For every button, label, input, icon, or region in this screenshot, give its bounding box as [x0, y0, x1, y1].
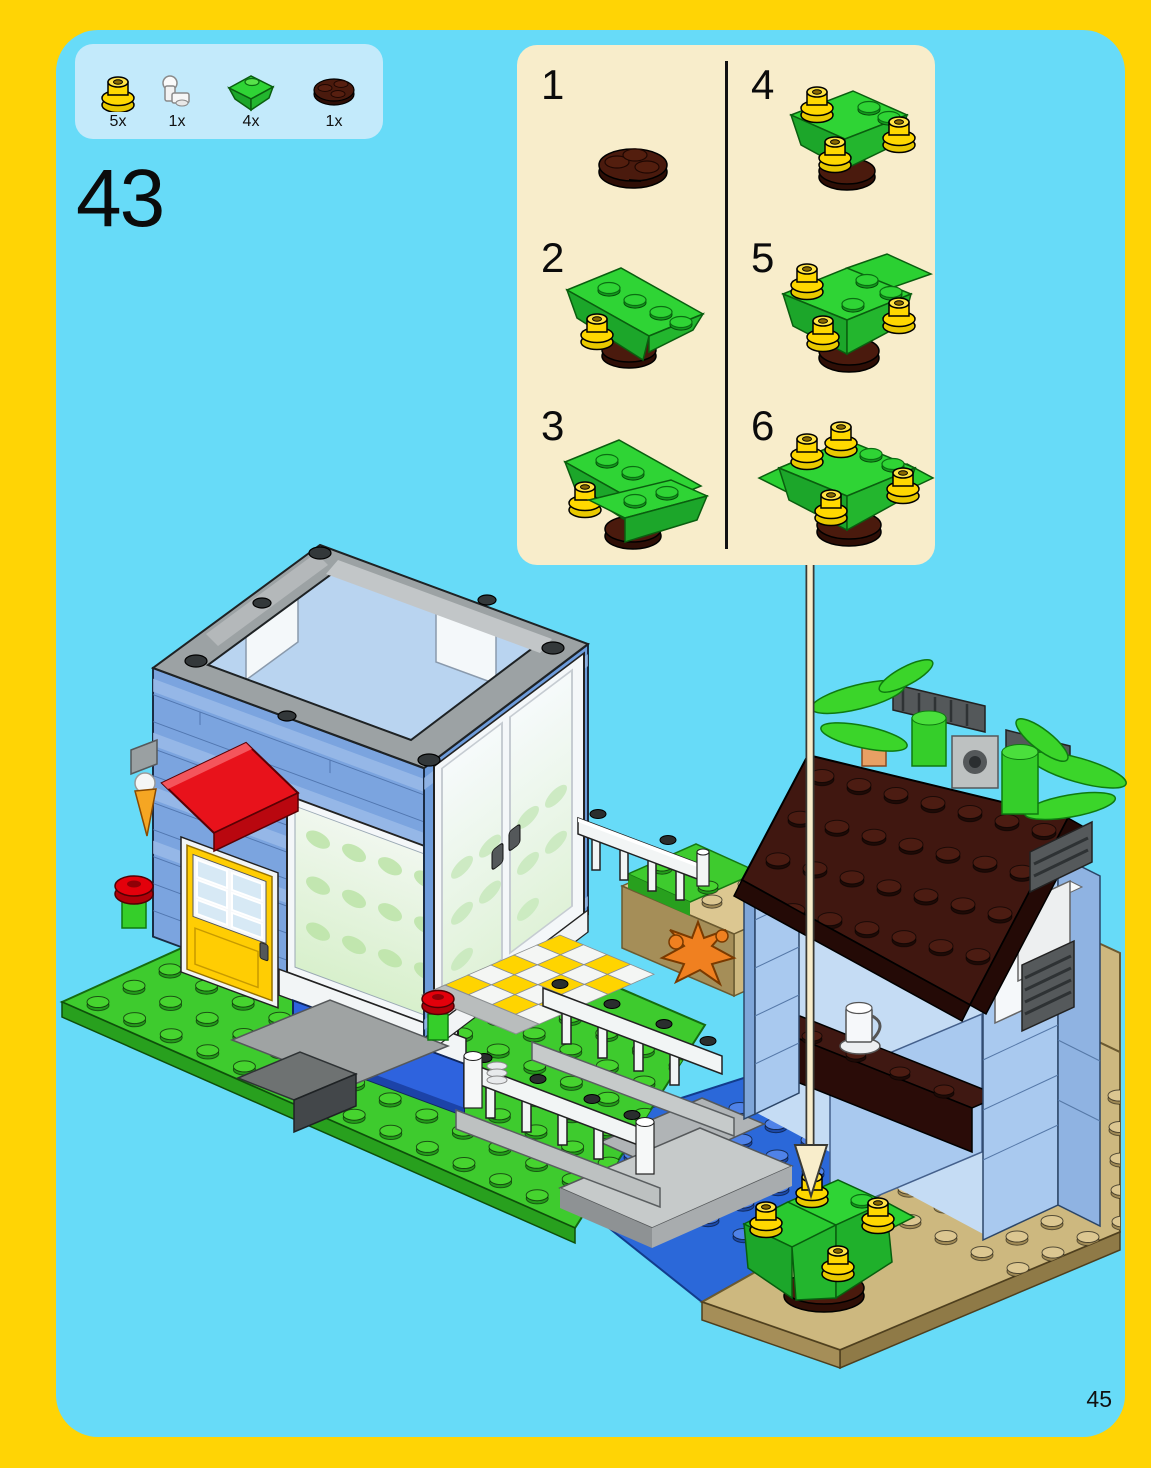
- door-handle: [260, 942, 268, 961]
- spring-piece: [487, 1062, 507, 1084]
- instruction-page: 5x 1x 4x: [0, 0, 1151, 1468]
- page-number: 45: [1056, 1386, 1112, 1413]
- glass-door-right: [510, 670, 572, 953]
- model-illustration: [0, 0, 1151, 1468]
- red-flower: [115, 876, 153, 928]
